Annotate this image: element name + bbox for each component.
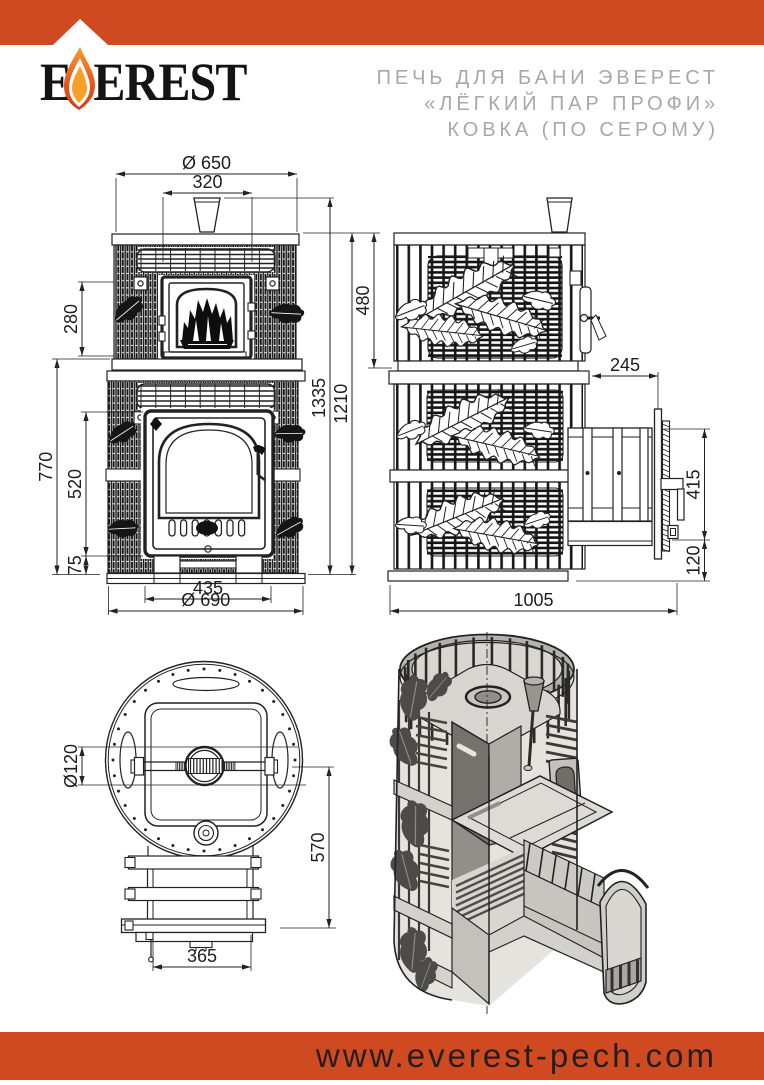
svg-text:520: 520 xyxy=(65,469,85,499)
svg-text:280: 280 xyxy=(61,304,81,334)
svg-text:1210: 1210 xyxy=(331,384,351,424)
svg-text:75: 75 xyxy=(65,555,85,575)
svg-text:«ЛЁГКИЙ ПАР ПРОФИ»: «ЛЁГКИЙ ПАР ПРОФИ» xyxy=(424,91,719,115)
svg-text:1005: 1005 xyxy=(513,590,553,610)
svg-text:EREST: EREST xyxy=(93,52,247,112)
svg-text:ПЕЧЬ ДЛЯ БАНИ ЭВЕРЕСТ: ПЕЧЬ ДЛЯ БАНИ ЭВЕРЕСТ xyxy=(377,67,719,89)
svg-text:Ø 650: Ø 650 xyxy=(182,153,231,173)
svg-text:770: 770 xyxy=(36,452,56,482)
svg-text:www.everest-pech.com: www.everest-pech.com xyxy=(315,1037,717,1074)
svg-text:365: 365 xyxy=(187,946,217,966)
svg-text:120: 120 xyxy=(684,545,704,575)
svg-text:570: 570 xyxy=(308,832,328,862)
svg-text:320: 320 xyxy=(192,172,222,192)
svg-text:КОВКА (ПО СЕРОМУ): КОВКА (ПО СЕРОМУ) xyxy=(447,119,719,141)
svg-text:245: 245 xyxy=(610,355,640,375)
svg-text:Ø120: Ø120 xyxy=(61,744,81,788)
svg-text:1335: 1335 xyxy=(309,378,329,418)
svg-text:480: 480 xyxy=(353,285,373,315)
svg-text:415: 415 xyxy=(684,469,704,499)
svg-text:Ø 690: Ø 690 xyxy=(181,590,230,610)
